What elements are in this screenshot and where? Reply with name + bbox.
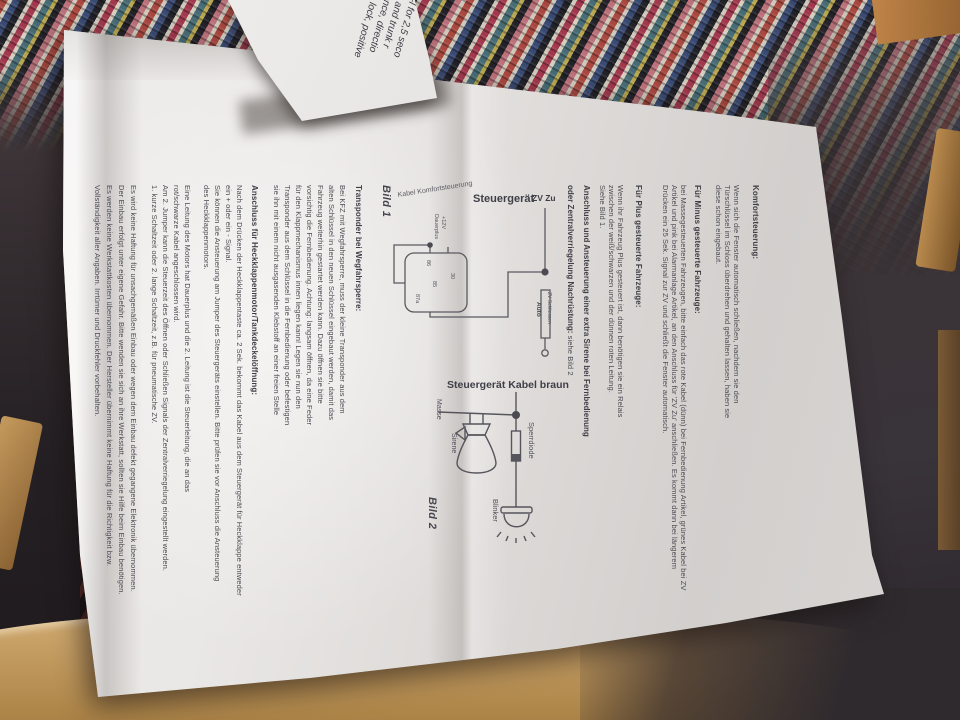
english-instruction-sheet: ―l for 2,5 seco es and trunk r ■"once, d… xyxy=(0,0,960,720)
english-text-rotated: ―l for 2,5 seco es and trunk r ■"once, d… xyxy=(319,0,420,138)
photo-of-instruction-sheet: Komfortsteuerung: Wenn sich die Fenster … xyxy=(0,0,960,720)
english-sheet-wrapper: ―l for 2,5 seco es and trunk r ■"once, d… xyxy=(0,0,960,720)
